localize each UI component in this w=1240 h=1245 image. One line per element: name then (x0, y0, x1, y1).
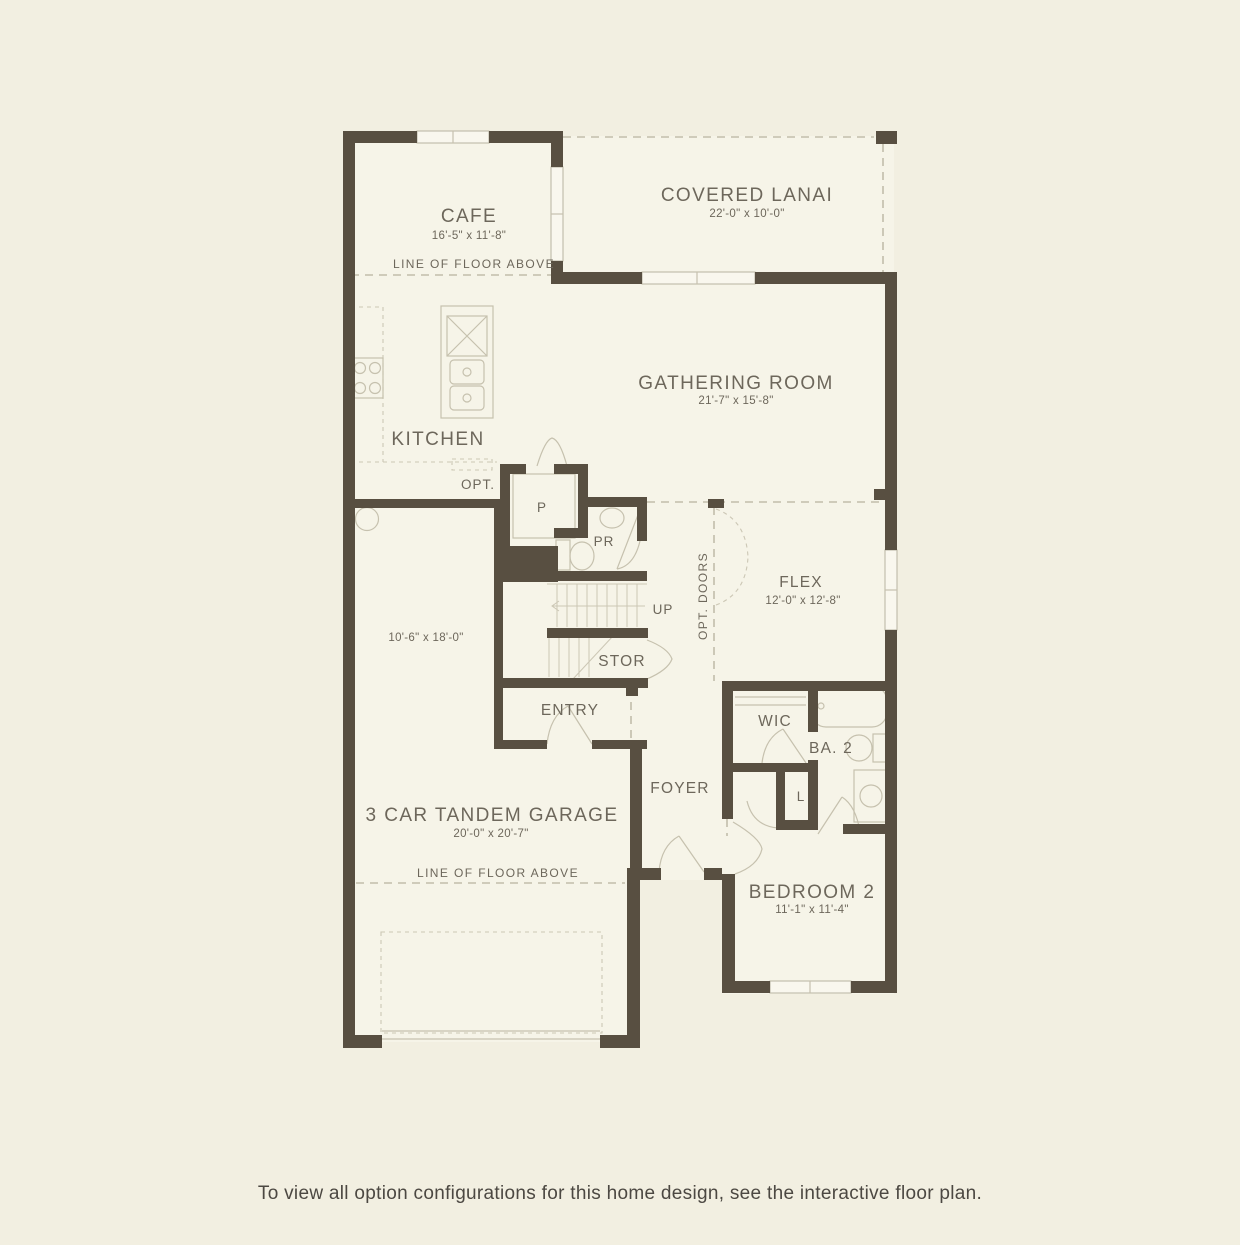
entry-label: ENTRY (541, 702, 599, 719)
covered-lanai-dims: 22'-0" x 10'-0" (709, 208, 784, 220)
gathering-room-dims: 21'-7" x 15'-8" (698, 395, 773, 407)
opt-cabinets-label: OPT. (461, 477, 495, 492)
pantry-label: P (537, 500, 547, 515)
line-of-floor-above-cafe: LINE OF FLOOR ABOVE (393, 257, 555, 271)
bath2-label: BA. 2 (809, 740, 853, 757)
cafe-lanai-window (551, 167, 563, 261)
gathering-window (642, 272, 755, 284)
powder-room-label: PR (594, 534, 615, 549)
bedroom2-label: BEDROOM 2 (749, 882, 876, 903)
foyer-label: FOYER (650, 780, 709, 797)
stairs-up-label: UP (653, 602, 674, 617)
flex-dims: 12'-0" x 12'-8" (765, 595, 840, 607)
cafe-dims: 16'-5" x 11'-8" (432, 230, 506, 242)
garage-label: 3 CAR TANDEM GARAGE (366, 805, 619, 826)
kitchen-label: KITCHEN (391, 429, 484, 450)
floor-plan-svg: CAFE 16'-5" x 11'-8" LINE OF FLOOR ABOVE… (0, 0, 1240, 1240)
floor-plan: CAFE 16'-5" x 11'-8" LINE OF FLOOR ABOVE… (0, 0, 1240, 1240)
bedroom2-window (770, 981, 851, 993)
footer-note: To view all option configurations for th… (0, 1183, 1240, 1205)
storage-label: STOR (598, 653, 646, 670)
opt-doors-label: OPT. DOORS (696, 552, 710, 640)
garage-dims: 20'-0" x 20'-7" (453, 828, 528, 840)
line-of-floor-above-garage: LINE OF FLOOR ABOVE (417, 866, 579, 880)
flex-window (885, 550, 897, 630)
cafe-window (417, 131, 489, 143)
laundry-label: L (797, 789, 806, 804)
covered-lanai-label: COVERED LANAI (661, 185, 833, 206)
flex-label: FLEX (779, 574, 823, 591)
gathering-room-label: GATHERING ROOM (638, 373, 834, 394)
bedroom2-dims: 11'-1" x 11'-4" (775, 904, 849, 916)
cafe-label: CAFE (441, 206, 497, 227)
garage-bay-dims: 10'-6" x 18'-0" (388, 632, 463, 644)
under-stair-mass (502, 546, 558, 582)
wic-label: WIC (758, 713, 792, 730)
lanai-column (876, 131, 897, 144)
